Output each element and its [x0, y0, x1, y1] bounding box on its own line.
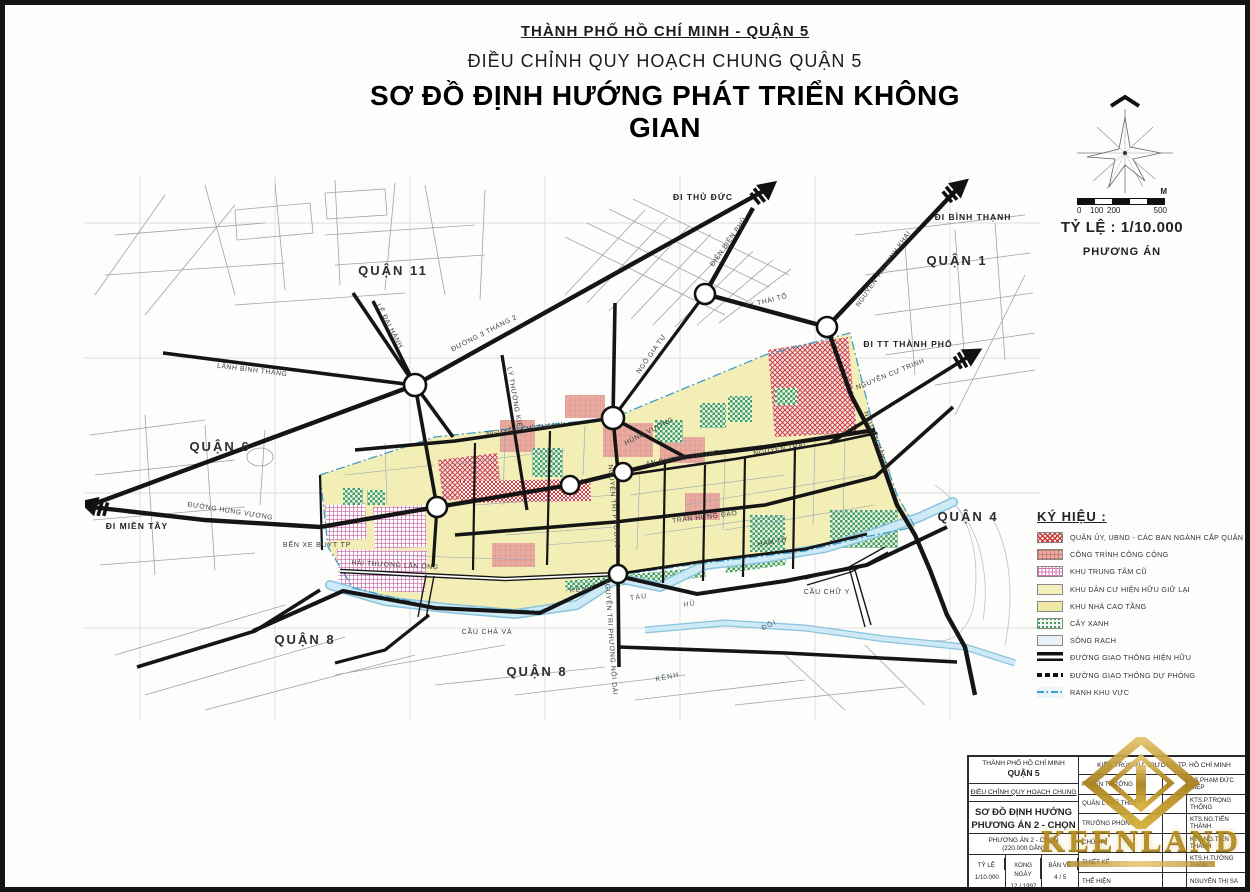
signature-row: TRƯỞNG PHÒNG KTS.NG.TIẾN THÀNH — [1079, 814, 1249, 834]
tick-0: 0 — [1077, 206, 1081, 215]
waterway-label: ĐÔI — [760, 617, 778, 632]
legend-item: QUẬN ỦY, UBND - CÁC BAN NGÀNH CẤP QUẬN — [1037, 532, 1250, 543]
signature-row: QUẢN LÝ KỸ THUẬT KTS.P.TRỌNG THỐNG — [1079, 795, 1249, 815]
legend-label: SÔNG RẠCH — [1070, 636, 1116, 645]
title-block: THÀNH PHỐ HỒ CHÍ MINH QUẬN 5 ĐIỀU CHỈNH … — [967, 755, 1250, 892]
tb-role: TRƯỞNG PHÒNG — [1079, 814, 1163, 833]
tb-city: THÀNH PHỐ HỒ CHÍ MINH — [982, 760, 1064, 767]
legend-label: ĐƯỜNG GIAO THÔNG HIỆN HỮU — [1070, 653, 1191, 662]
title-block-left: THÀNH PHỐ HỒ CHÍ MINH QUẬN 5 ĐIỀU CHỈNH … — [969, 757, 1079, 891]
swatch-old-center — [1037, 566, 1063, 577]
legend-item: CÂY XANH — [1037, 618, 1250, 629]
legend-label: RANH KHU VỰC — [1070, 688, 1129, 697]
tb-scale-value: 1/10.000 — [969, 870, 1005, 882]
scale-bar: M 0 100 200 500 — [1077, 198, 1165, 215]
signature-row: THỂ HIỆN NGUYỄN THỊ SA — [1079, 873, 1249, 892]
tb-variant-cell: PHƯƠNG ÁN 2 - CHỌN (220.000 DÂN) — [969, 834, 1078, 855]
swatch-planned-road — [1037, 670, 1063, 681]
swatch-area-boundary — [1037, 687, 1063, 698]
compass-rose — [1073, 93, 1177, 197]
tb-city-cell: THÀNH PHỐ HỒ CHÍ MINH QUẬN 5 — [969, 757, 1078, 784]
tb-signature-cell — [1163, 853, 1187, 872]
legend-item: KHU DÂN CƯ HIỆN HỮU GIỮ LẠI — [1037, 584, 1250, 595]
road-label: LÊ ĐẠI HÀNH — [375, 302, 406, 350]
tb-variant: PHƯƠNG ÁN 2 - CHỌN — [969, 837, 1078, 846]
tb-signature-cell — [1163, 834, 1187, 853]
tb-name: KS.PHẠM ĐỨC HIỆP — [1187, 775, 1249, 794]
swatch-residential — [1037, 584, 1063, 595]
legend-item: KHU NHÀ CAO TẦNG — [1037, 601, 1250, 612]
district-label: QUẬN 11 — [358, 263, 428, 278]
swatch-greenery — [1037, 618, 1063, 629]
district-label: QUẬN 8 — [274, 632, 335, 647]
tb-signature-cell — [1163, 775, 1187, 794]
tb-role: THIẾT KẾ — [1079, 853, 1163, 872]
exit-label: ĐI THỦ ĐỨC — [673, 191, 733, 202]
header-project: ĐIỀU CHỈNH QUY HOẠCH CHUNG QUẬN 5 — [360, 51, 970, 72]
tb-name: KTS.P.TRỌNG THỐNG — [1187, 795, 1249, 814]
tb-project: ĐIỀU CHỈNH QUY HOẠCH CHUNG — [969, 784, 1078, 802]
signature-row: CHỦ TRÌ KTS.NG.TIẾN THÀNH — [1079, 834, 1249, 854]
district-label: QUẬN 4 — [937, 509, 998, 524]
legend-title: KÝ HIỆU : — [1037, 509, 1250, 524]
tb-role: CHỦ TRÌ — [1079, 834, 1163, 853]
tb-signature-cell — [1163, 814, 1187, 833]
signature-row: P. VIỆN TRƯỞNG KS.PHẠM ĐỨC HIỆP — [1079, 775, 1249, 795]
legend-label: KHU NHÀ CAO TẦNG — [1070, 602, 1147, 611]
legend-item: CÔNG TRÌNH CÔNG CỘNG — [1037, 549, 1250, 560]
title-block-right: KIẾN TRÚC SƯ TRƯỞNG TP. HỒ CHÍ MINH P. V… — [1079, 757, 1249, 891]
waterway-label: TÀU — [629, 591, 648, 602]
legend-item: ĐƯỜNG GIAO THÔNG DỰ PHÓNG — [1037, 670, 1250, 681]
legend-label: KHU TRUNG TÂM CŨ — [1070, 567, 1147, 576]
tb-sheet-title-1: SƠ ĐỒ ĐỊNH HƯỚNG — [969, 806, 1078, 819]
scale-bar-segments — [1077, 198, 1165, 205]
tick-100: 100 — [1090, 206, 1103, 215]
planning-map: QUẬN 11 QUẬN 1 QUẬN 6 QUẬN 4 QUẬN 8 QUẬN… — [85, 175, 1040, 720]
tb-signature-cell — [1163, 873, 1187, 892]
tb-sheetno-label: BẢN VẼ — [1042, 858, 1078, 870]
waterway-labels: KÊNH TÀU HỦ KÊNH ĐÔI — [569, 582, 778, 683]
scale-ratio: TỶ LỆ : 1/10.000 — [1057, 219, 1187, 236]
legend-label: CÔNG TRÌNH CÔNG CỘNG — [1070, 550, 1169, 559]
tb-population: (220.000 DÂN) — [969, 845, 1078, 854]
waterway-label: KÊNH — [655, 670, 681, 684]
tb-scale-cell: TỶ LỆ 1/10.000 — [969, 855, 1006, 891]
exit-label: ĐI TT THÀNH PHỐ — [863, 338, 952, 349]
bridge-label: CẦU CHÀ VÀ — [462, 626, 513, 636]
plan-sheet: THÀNH PHỐ HỒ CHÍ MINH - QUẬN 5 ĐIỀU CHỈN… — [0, 0, 1250, 892]
tb-name: KTS.H.TƯỜNG THÂN — [1187, 853, 1249, 872]
district-label: QUẬN 1 — [926, 253, 987, 268]
north-chevron — [1111, 97, 1139, 106]
legend-item: SÔNG RẠCH — [1037, 635, 1250, 646]
legend-label: ĐƯỜNG GIAO THÔNG DỰ PHÓNG — [1070, 671, 1195, 680]
tb-role: QUẢN LÝ KỸ THUẬT — [1079, 795, 1163, 814]
tb-scale-label: TỶ LỆ — [969, 858, 1005, 870]
swatch-committee — [1037, 532, 1063, 543]
tb-name: KTS.NG.TIẾN THÀNH — [1187, 834, 1249, 853]
swatch-public-works — [1037, 549, 1063, 560]
header-subtitle: THÀNH PHỐ HỒ CHÍ MINH - QUẬN 5 — [360, 23, 970, 40]
tb-sheet-title: SƠ ĐỒ ĐỊNH HƯỚNG PHƯƠNG ÁN 2 - CHỌN — [969, 802, 1078, 834]
scale-plan-label: PHƯƠNG ÁN — [1057, 246, 1187, 258]
district-label: QUẬN 8 — [506, 664, 567, 679]
tb-sheetno-cell: BẢN VẼ 4 / 5 — [1042, 855, 1078, 891]
tb-sheetno-value: 4 / 5 — [1042, 870, 1078, 882]
legend-label: QUẬN ỦY, UBND - CÁC BAN NGÀNH CẤP QUẬN — [1070, 533, 1243, 542]
road-label: NGUYỄN THỊ MINH KHAI — [853, 229, 912, 309]
tb-role: P. VIỆN TRƯỞNG — [1079, 775, 1163, 794]
legend-label: KHU DÂN CƯ HIỆN HỮU GIỮ LẠI — [1070, 585, 1190, 594]
tb-name: KTS.NG.TIẾN THÀNH — [1187, 814, 1249, 833]
legend-label: CÂY XANH — [1070, 619, 1109, 628]
legend: KÝ HIỆU : QUẬN ỦY, UBND - CÁC BAN NGÀNH … — [1037, 509, 1250, 704]
swatch-existing-road — [1037, 652, 1063, 663]
page-title: SƠ ĐỒ ĐỊNH HƯỚNG PHÁT TRIỂN KHÔNG GIAN — [360, 80, 970, 144]
swatch-river — [1037, 635, 1063, 646]
tb-date-cell: XONG NGÀY 12 / 1997 — [1006, 855, 1043, 891]
tb-date-value: 12 / 1997 — [1006, 879, 1042, 891]
legend-item: KHU TRUNG TÂM CŨ — [1037, 566, 1250, 577]
tick-200: 200 — [1107, 206, 1120, 215]
tb-authority: KIẾN TRÚC SƯ TRƯỞNG TP. HỒ CHÍ MINH — [1079, 757, 1249, 775]
tb-name: NGUYỄN THỊ SA — [1187, 873, 1249, 892]
header: THÀNH PHỐ HỒ CHÍ MINH - QUẬN 5 ĐIỀU CHỈN… — [360, 23, 970, 144]
tb-district: QUẬN 5 — [969, 768, 1078, 778]
signature-row: THIẾT KẾ KTS.H.TƯỜNG THÂN — [1079, 853, 1249, 873]
road-label: LÝ THÁI TỔ — [745, 291, 789, 310]
tick-500: 500 — [1154, 206, 1167, 215]
exit-label: ĐI BÌNH THẠNH — [935, 212, 1012, 222]
waterway-label: HỦ — [683, 598, 697, 609]
legend-item: RANH KHU VỰC — [1037, 687, 1250, 698]
tb-signature-cell — [1163, 795, 1187, 814]
legend-item: ĐƯỜNG GIAO THÔNG HIỆN HỮU — [1037, 652, 1250, 663]
tb-date-label: XONG NGÀY — [1006, 858, 1042, 879]
scale-ticks: 0 100 200 500 — [1077, 205, 1165, 215]
bridge-label: CẦU CHỮ Y — [804, 586, 851, 596]
tb-sheet-title-2: PHƯƠNG ÁN 2 - CHỌN — [969, 819, 1078, 832]
swatch-highrise — [1037, 601, 1063, 612]
tb-role: THỂ HIỆN — [1079, 873, 1163, 892]
tb-meta-row: TỶ LỆ 1/10.000 XONG NGÀY 12 / 1997 BẢN V… — [969, 855, 1078, 891]
district-label: QUẬN 6 — [189, 439, 250, 454]
exit-label: ĐI MIỀN TÂY — [106, 520, 168, 531]
scale-unit: M — [1160, 187, 1167, 196]
